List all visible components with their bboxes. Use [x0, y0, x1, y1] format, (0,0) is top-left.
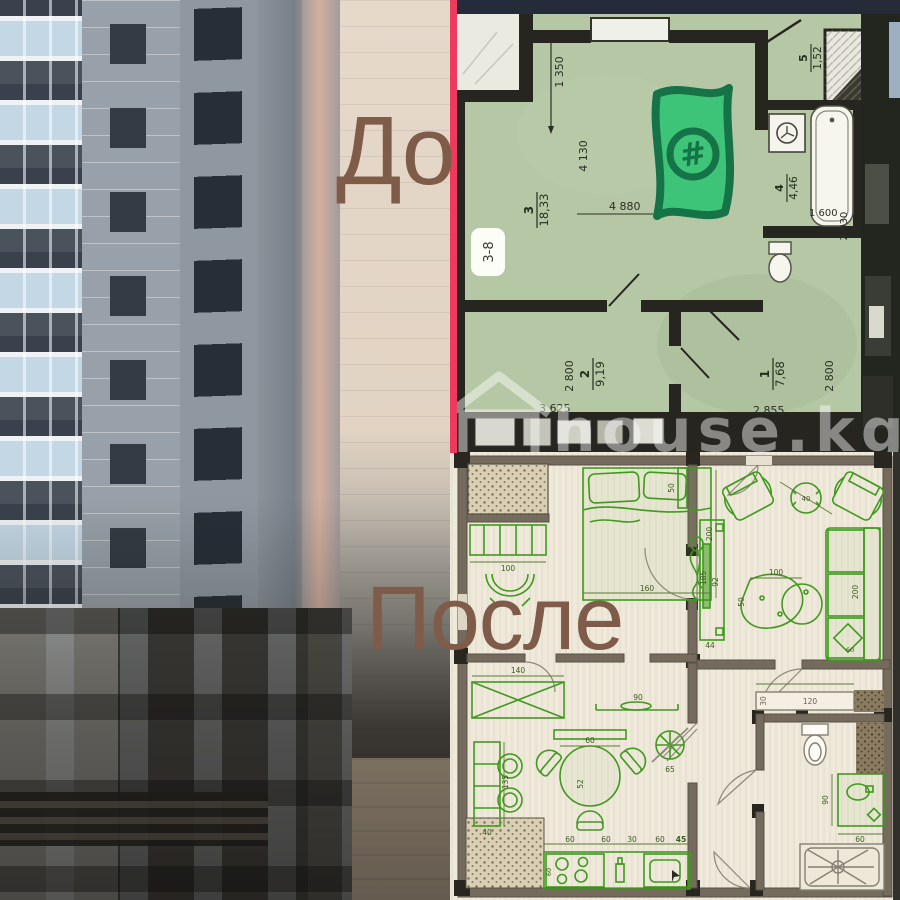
before-after-collage: 1 350 4 130 4 880 1 600 2 930 2 800 3 62… [0, 0, 900, 900]
svg-text:100: 100 [769, 568, 784, 577]
before-label: До [336, 102, 455, 199]
toilet-icon [802, 724, 828, 765]
dim-label: 4 880 [609, 200, 641, 213]
svg-text:60: 60 [846, 646, 854, 654]
money-sticker-icon: # [656, 88, 730, 216]
kitchen-floor-hatch [466, 818, 544, 888]
shower-tray-icon [800, 844, 884, 890]
svg-text:52: 52 [576, 779, 585, 789]
unit-badge: 3-8 [471, 228, 505, 276]
svg-text:90: 90 [633, 693, 643, 702]
svg-text:4: 4 [773, 184, 786, 192]
svg-text:50: 50 [667, 483, 676, 493]
svg-text:160: 160 [640, 584, 655, 593]
watermark-text: house.kg [553, 396, 900, 452]
dim-label: 1 350 [553, 56, 566, 88]
floor-plan-before: 1 350 4 130 4 880 1 600 2 930 2 800 3 62… [457, 14, 900, 452]
svg-text:185: 185 [699, 571, 708, 586]
dim-label: 2 800 [823, 360, 836, 392]
svg-text:5: 5 [797, 54, 810, 62]
svg-text:135: 135 [501, 775, 510, 790]
svg-text:30: 30 [759, 696, 768, 706]
dining-table [560, 746, 620, 806]
dim-label: 2 800 [563, 360, 576, 392]
svg-text:60: 60 [601, 835, 611, 844]
dim-label: 2 930 [839, 212, 850, 241]
red-divider-line [450, 0, 457, 453]
svg-text:1: 1 [758, 370, 772, 378]
svg-text:200: 200 [705, 527, 714, 542]
balcony-hatch [468, 464, 548, 514]
svg-text:3: 3 [522, 206, 536, 214]
svg-text:200: 200 [851, 585, 860, 600]
svg-text:60: 60 [655, 835, 665, 844]
svg-text:40: 40 [802, 495, 811, 503]
washing-machine-icon [769, 114, 805, 152]
svg-text:3-8: 3-8 [482, 241, 497, 262]
svg-text:1,52: 1,52 [812, 46, 824, 69]
svg-text:60: 60 [565, 835, 575, 844]
svg-text:92: 92 [711, 577, 720, 587]
window [591, 18, 669, 41]
svg-text:2: 2 [578, 370, 592, 378]
floor-plan-after: 160 200 50 100 40 185 92 44 100 50 200 6… [450, 452, 900, 900]
dim-label: 4 130 [577, 140, 590, 172]
svg-text:65: 65 [665, 765, 675, 774]
wall-hatch [854, 690, 884, 712]
svg-text:7,68: 7,68 [773, 361, 787, 387]
svg-text:45: 45 [676, 835, 686, 844]
vanity-sink [838, 774, 884, 826]
toilet-icon [769, 242, 791, 282]
wall-hatch [856, 722, 884, 774]
svg-text:60: 60 [855, 835, 865, 844]
svg-text:9,19: 9,19 [593, 361, 607, 387]
svg-text:18,33: 18,33 [537, 194, 551, 227]
svg-text:30: 30 [627, 835, 637, 844]
svg-text:90: 90 [821, 795, 830, 805]
svg-text:4,46: 4,46 [788, 176, 800, 200]
dim-label: 1 600 [809, 208, 838, 219]
svg-text:40: 40 [482, 828, 492, 837]
neighbour-room [457, 14, 519, 90]
svg-text:120: 120 [803, 697, 818, 706]
after-label: После [366, 574, 623, 664]
svg-text:44: 44 [705, 641, 715, 650]
status-bar [457, 0, 900, 14]
svg-text:60: 60 [585, 736, 595, 745]
svg-text:50: 50 [737, 597, 746, 607]
svg-text:60: 60 [545, 868, 553, 876]
